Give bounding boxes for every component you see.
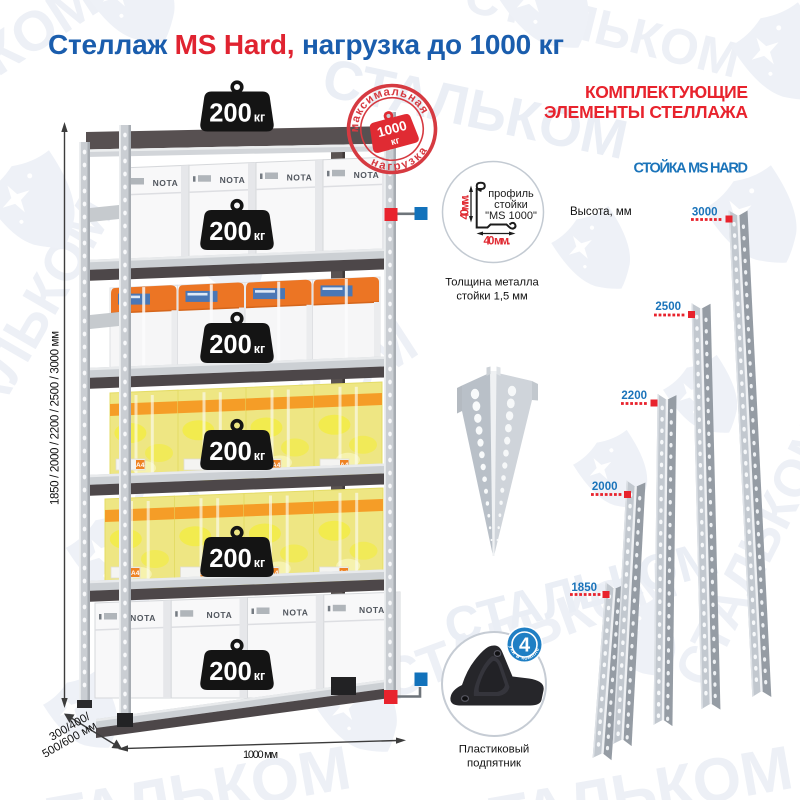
svg-text:NOTA: NOTA (153, 178, 179, 188)
svg-text:кг: кг (254, 556, 265, 570)
svg-text:40 мм.: 40 мм. (484, 236, 511, 248)
svg-text:200: 200 (209, 658, 252, 686)
svg-text:кг: кг (254, 111, 265, 125)
svg-text:200: 200 (209, 218, 252, 246)
svg-text:1850: 1850 (571, 582, 597, 594)
svg-text:NOTA: NOTA (287, 173, 313, 183)
svg-text:кг: кг (254, 342, 265, 356)
svg-text:1000 мм: 1000 мм (243, 749, 278, 761)
svg-text:NOTA: NOTA (206, 610, 232, 620)
svg-text:200: 200 (209, 331, 252, 359)
svg-text:NOTA: NOTA (220, 175, 246, 185)
svg-text:кг: кг (254, 229, 265, 243)
svg-text:Толщина металла: Толщина металла (445, 277, 539, 289)
svg-text:NOTA: NOTA (130, 613, 156, 623)
svg-text:"MS 1000": "MS 1000" (485, 210, 537, 222)
svg-text:NOTA: NOTA (283, 608, 309, 618)
svg-text:A4: A4 (136, 462, 145, 469)
svg-text:40 мм.: 40 мм. (460, 195, 472, 220)
svg-text:стойки 1,5 мм: стойки 1,5 мм (456, 291, 527, 303)
svg-text:4: 4 (519, 635, 531, 657)
svg-text:Пластиковый: Пластиковый (459, 744, 530, 756)
svg-text:СТОЙКА MS HARD: СТОЙКА MS HARD (634, 159, 749, 177)
svg-text:200: 200 (209, 438, 252, 466)
svg-text:A4: A4 (131, 570, 140, 577)
svg-text:200: 200 (209, 545, 252, 573)
svg-text:2500: 2500 (655, 301, 681, 313)
svg-text:NOTA: NOTA (354, 170, 380, 180)
svg-text:NOTA: NOTA (359, 605, 385, 615)
svg-text:Стеллаж MS Hard, нагрузка до 1: Стеллаж MS Hard, нагрузка до 1000 кг (48, 29, 564, 60)
svg-text:кг: кг (254, 669, 265, 683)
svg-text:Высота, мм: Высота, мм (570, 206, 632, 218)
svg-text:1850 / 2000 / 2200 / 2500 / 30: 1850 / 2000 / 2200 / 2500 / 3000 мм (50, 331, 62, 505)
svg-text:2000: 2000 (592, 481, 618, 493)
svg-text:ЭЛЕМЕНТЫ СТЕЛЛАЖА: ЭЛЕМЕНТЫ СТЕЛЛАЖА (544, 102, 748, 122)
svg-text:кг: кг (254, 449, 265, 463)
svg-text:КОМПЛЕКТУЮЩИЕ: КОМПЛЕКТУЮЩИЕ (585, 82, 748, 102)
svg-text:3000: 3000 (692, 207, 718, 219)
svg-text:подпятник: подпятник (467, 758, 522, 770)
svg-text:200: 200 (209, 100, 252, 128)
svg-text:2200: 2200 (621, 390, 647, 402)
